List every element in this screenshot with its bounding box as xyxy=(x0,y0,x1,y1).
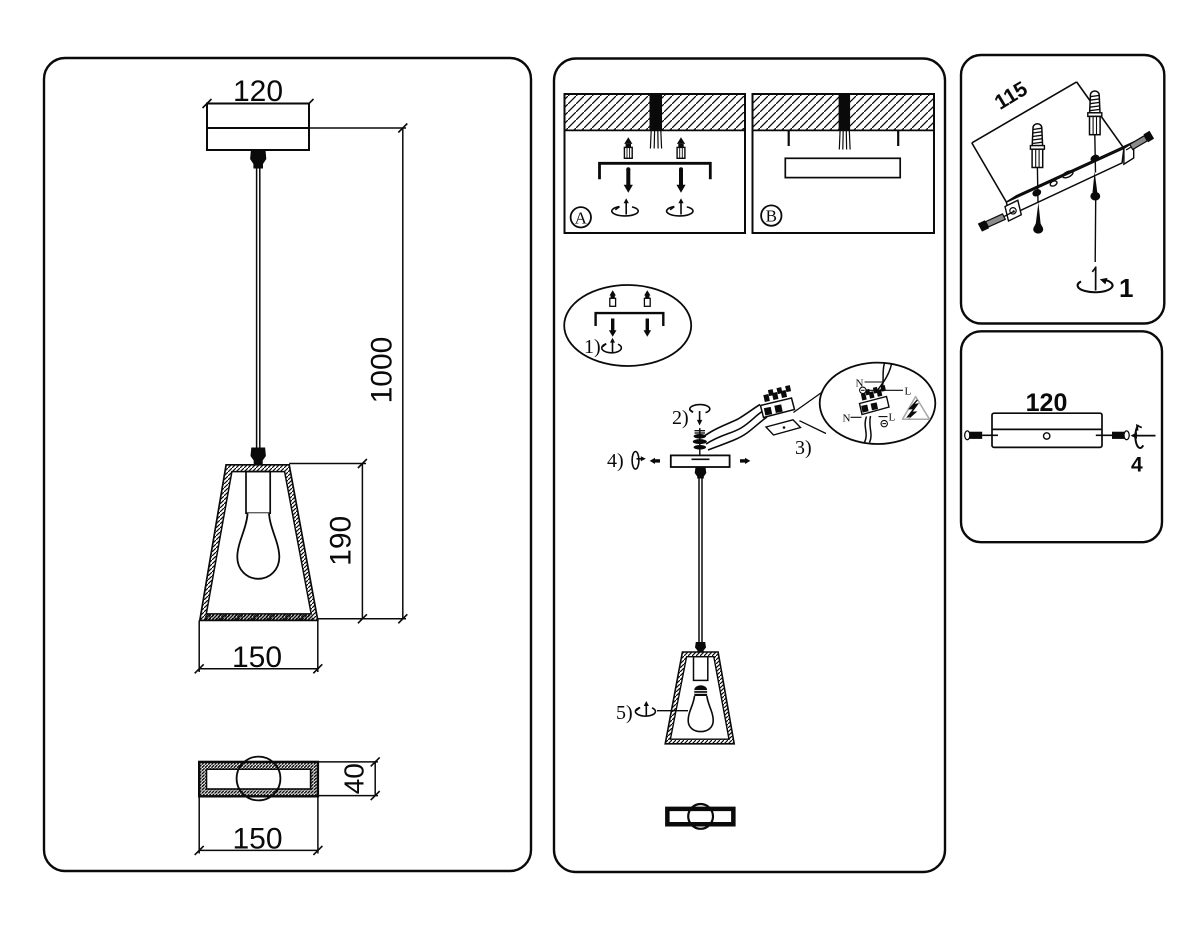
svg-text:B: B xyxy=(766,207,777,226)
svg-text:40: 40 xyxy=(339,763,370,794)
svg-text:1): 1) xyxy=(584,336,601,358)
svg-text:4): 4) xyxy=(607,450,624,472)
svg-text:5): 5) xyxy=(616,702,633,724)
svg-text:L: L xyxy=(905,386,912,398)
svg-text:2): 2) xyxy=(672,407,689,429)
svg-text:3): 3) xyxy=(795,437,812,459)
svg-text:4: 4 xyxy=(1131,454,1143,477)
svg-text:1000: 1000 xyxy=(366,337,399,404)
svg-text:150: 150 xyxy=(232,823,282,856)
svg-text:A: A xyxy=(575,208,588,227)
svg-text:L: L xyxy=(889,412,896,424)
svg-text:190: 190 xyxy=(325,516,358,566)
svg-text:150: 150 xyxy=(232,641,282,674)
svg-text:1: 1 xyxy=(1119,273,1133,303)
svg-text:N: N xyxy=(843,413,851,425)
